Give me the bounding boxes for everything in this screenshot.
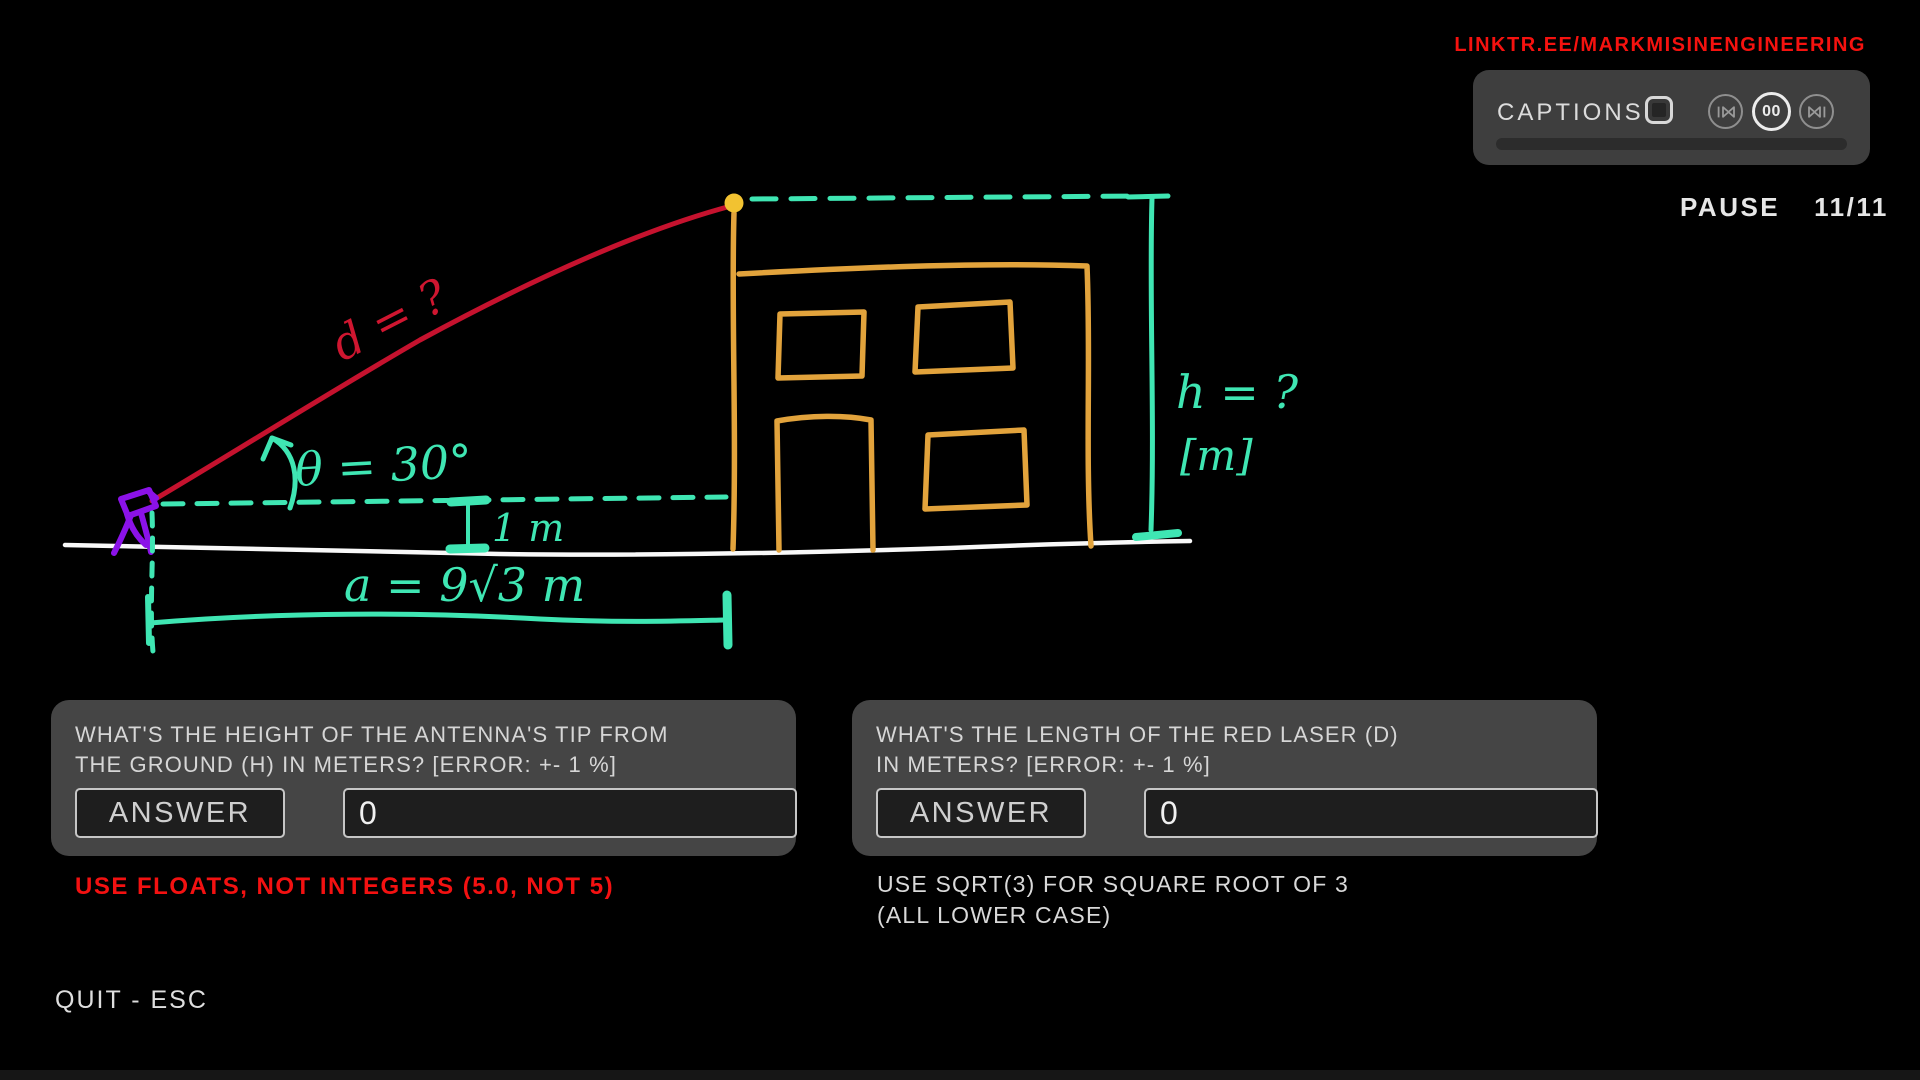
pause-status-row: PAUSE 11/11 [1680,192,1889,223]
offset-marker-bottom-cap [450,548,485,549]
question-text-line2: THE GROUND (H) IN METERS? [ERROR: +- 1 %… [75,750,772,780]
building-sketch [733,213,1091,550]
question-text-line1: WHAT'S THE LENGTH OF THE RED LASER (D) [876,720,1573,750]
captions-panel: CAPTIONS 00 [1473,70,1870,165]
floats-warning-note: USE FLOATS, NOT INTEGERS (5.0, NOT 5) [75,873,614,901]
skip-forward-icon [1806,104,1828,120]
linktree-url: LINKTR.EE/MARKMISINENGINEERING [1454,34,1866,57]
angle-arrow-head [263,438,291,459]
question-counter: 11/11 [1814,192,1889,223]
laser-length-label: d = ? [323,268,456,372]
pause-label: PAUSE [1680,192,1780,223]
captions-label: CAPTIONS [1497,99,1644,127]
h-dim-bottom-cap [1136,533,1178,537]
top-dashed-line [752,196,1138,199]
h-dim-top-cap [1128,196,1168,197]
bottom-edge-strip [0,1070,1920,1080]
vertical-dashed-line [151,513,153,652]
skip-back-icon [1715,104,1737,120]
door [777,416,873,550]
question-text-line2: IN METERS? [ERROR: +- 1 %] [876,750,1573,780]
offset-marker-top-cap [451,500,486,502]
dimension-lines [148,196,1178,652]
caption-progress-bar[interactable] [1496,138,1847,150]
answer-button[interactable]: ANSWER [876,788,1086,838]
question-text-line1: WHAT'S THE HEIGHT OF THE ANTENNA'S TIP F… [75,720,772,750]
antenna-pole [733,213,734,549]
window-upper-left [778,312,864,378]
height-unit-label: [m] [1180,431,1253,480]
distance-label: a = 9√3 m [344,558,585,612]
angle-label: θ = 30° [294,434,474,497]
checkbox-fill [1652,103,1666,117]
a-dim-left-tick [148,597,149,643]
answer-button[interactable]: ANSWER [75,788,285,838]
angle-arrow [272,438,295,508]
ground-line [65,541,1190,555]
antenna-tip-dot [725,194,744,213]
a-dim-line [150,614,724,623]
quit-hint: QUIT - ESC [55,986,208,1015]
center-chapter-button[interactable]: 00 [1752,92,1791,131]
sqrt-hint-line2: (ALL LOWER CASE) [877,900,1349,931]
sqrt-hint-note: USE SQRT(3) FOR SQUARE ROOT OF 3 (ALL LO… [877,869,1349,931]
window-lower-right [925,430,1027,509]
answer-input[interactable] [1144,788,1598,838]
offset-label: 1 m [492,506,564,550]
chapter-number-label: 00 [1762,103,1781,121]
question-card-laser: WHAT'S THE LENGTH OF THE RED LASER (D) I… [852,700,1597,856]
sqrt-hint-line1: USE SQRT(3) FOR SQUARE ROOT OF 3 [877,869,1349,900]
question-card-height: WHAT'S THE HEIGHT OF THE ANTENNA'S TIP F… [51,700,796,856]
skip-forward-button[interactable] [1799,94,1834,129]
answer-input[interactable] [343,788,797,838]
skip-back-button[interactable] [1708,94,1743,129]
antenna-level-dashed-line [163,497,726,504]
h-dim-line [1151,198,1152,530]
laser-line [152,206,731,501]
window-upper-right [915,302,1013,372]
captions-checkbox[interactable] [1645,96,1673,124]
height-label: h = ? [1176,365,1298,419]
a-dim-right-tick [727,595,728,645]
laser-device [114,490,156,553]
building-outline [739,265,1091,546]
